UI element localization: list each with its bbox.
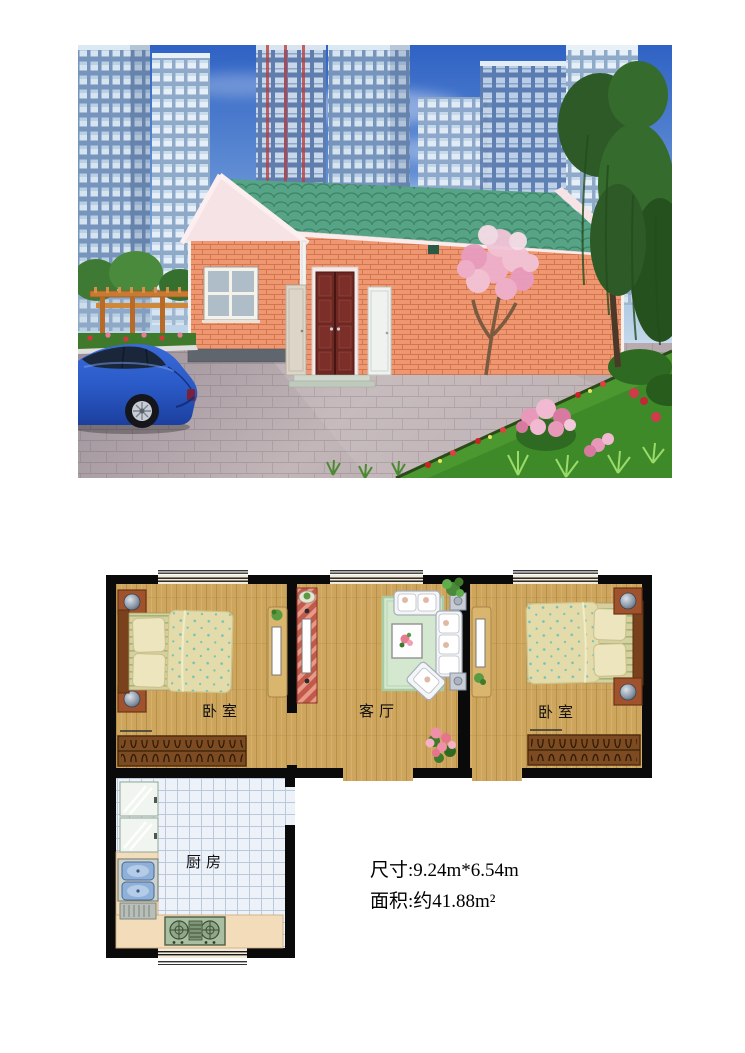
room-label-kitchen: 厨房 [186,851,226,872]
side-door-right [368,287,391,375]
plan-info: 尺寸:9.24m*6.54m 面积:约41.88m² [370,855,519,917]
window-bedroom-left [158,570,248,584]
room-label-bedroom-left: 卧室 [202,700,242,721]
wardrobe-left [118,736,246,766]
dimensions-text: 尺寸:9.24m*6.54m [370,855,519,886]
tv-stand-left-bedroom [268,607,287,697]
house [182,175,634,387]
window-bedroom-right [513,570,598,584]
room-label-living-room: 客厅 [359,700,399,721]
stove [165,917,225,945]
bed-blanket [167,610,233,693]
bed-headboard [118,610,129,693]
tv-stand-right-bedroom [472,607,491,697]
entry-steps [289,375,375,387]
sink [118,859,158,901]
sofa [436,611,462,677]
tv-cabinet [297,588,317,703]
loveseat [394,591,440,615]
window-kitchen [158,948,247,965]
window-living [330,570,423,584]
wall-plaque [428,245,439,254]
wardrobe-right [528,735,640,765]
gable-window [202,267,260,323]
coffee-table [392,624,422,658]
house-illustration [78,45,672,478]
bed-blanket [526,602,600,684]
area-text: 面积:约41.88m² [370,886,519,917]
room-label-bedroom-right: 卧室 [538,701,578,722]
drainboard [120,903,156,919]
exterior-photo [78,45,672,478]
side-door-left [286,285,306,375]
main-entry-door [312,267,358,377]
property-listing-page: 卧室 客厅 卧室 厨房 尺寸:9.24m*6.54m 面积:约41.88m² [0,0,745,1053]
